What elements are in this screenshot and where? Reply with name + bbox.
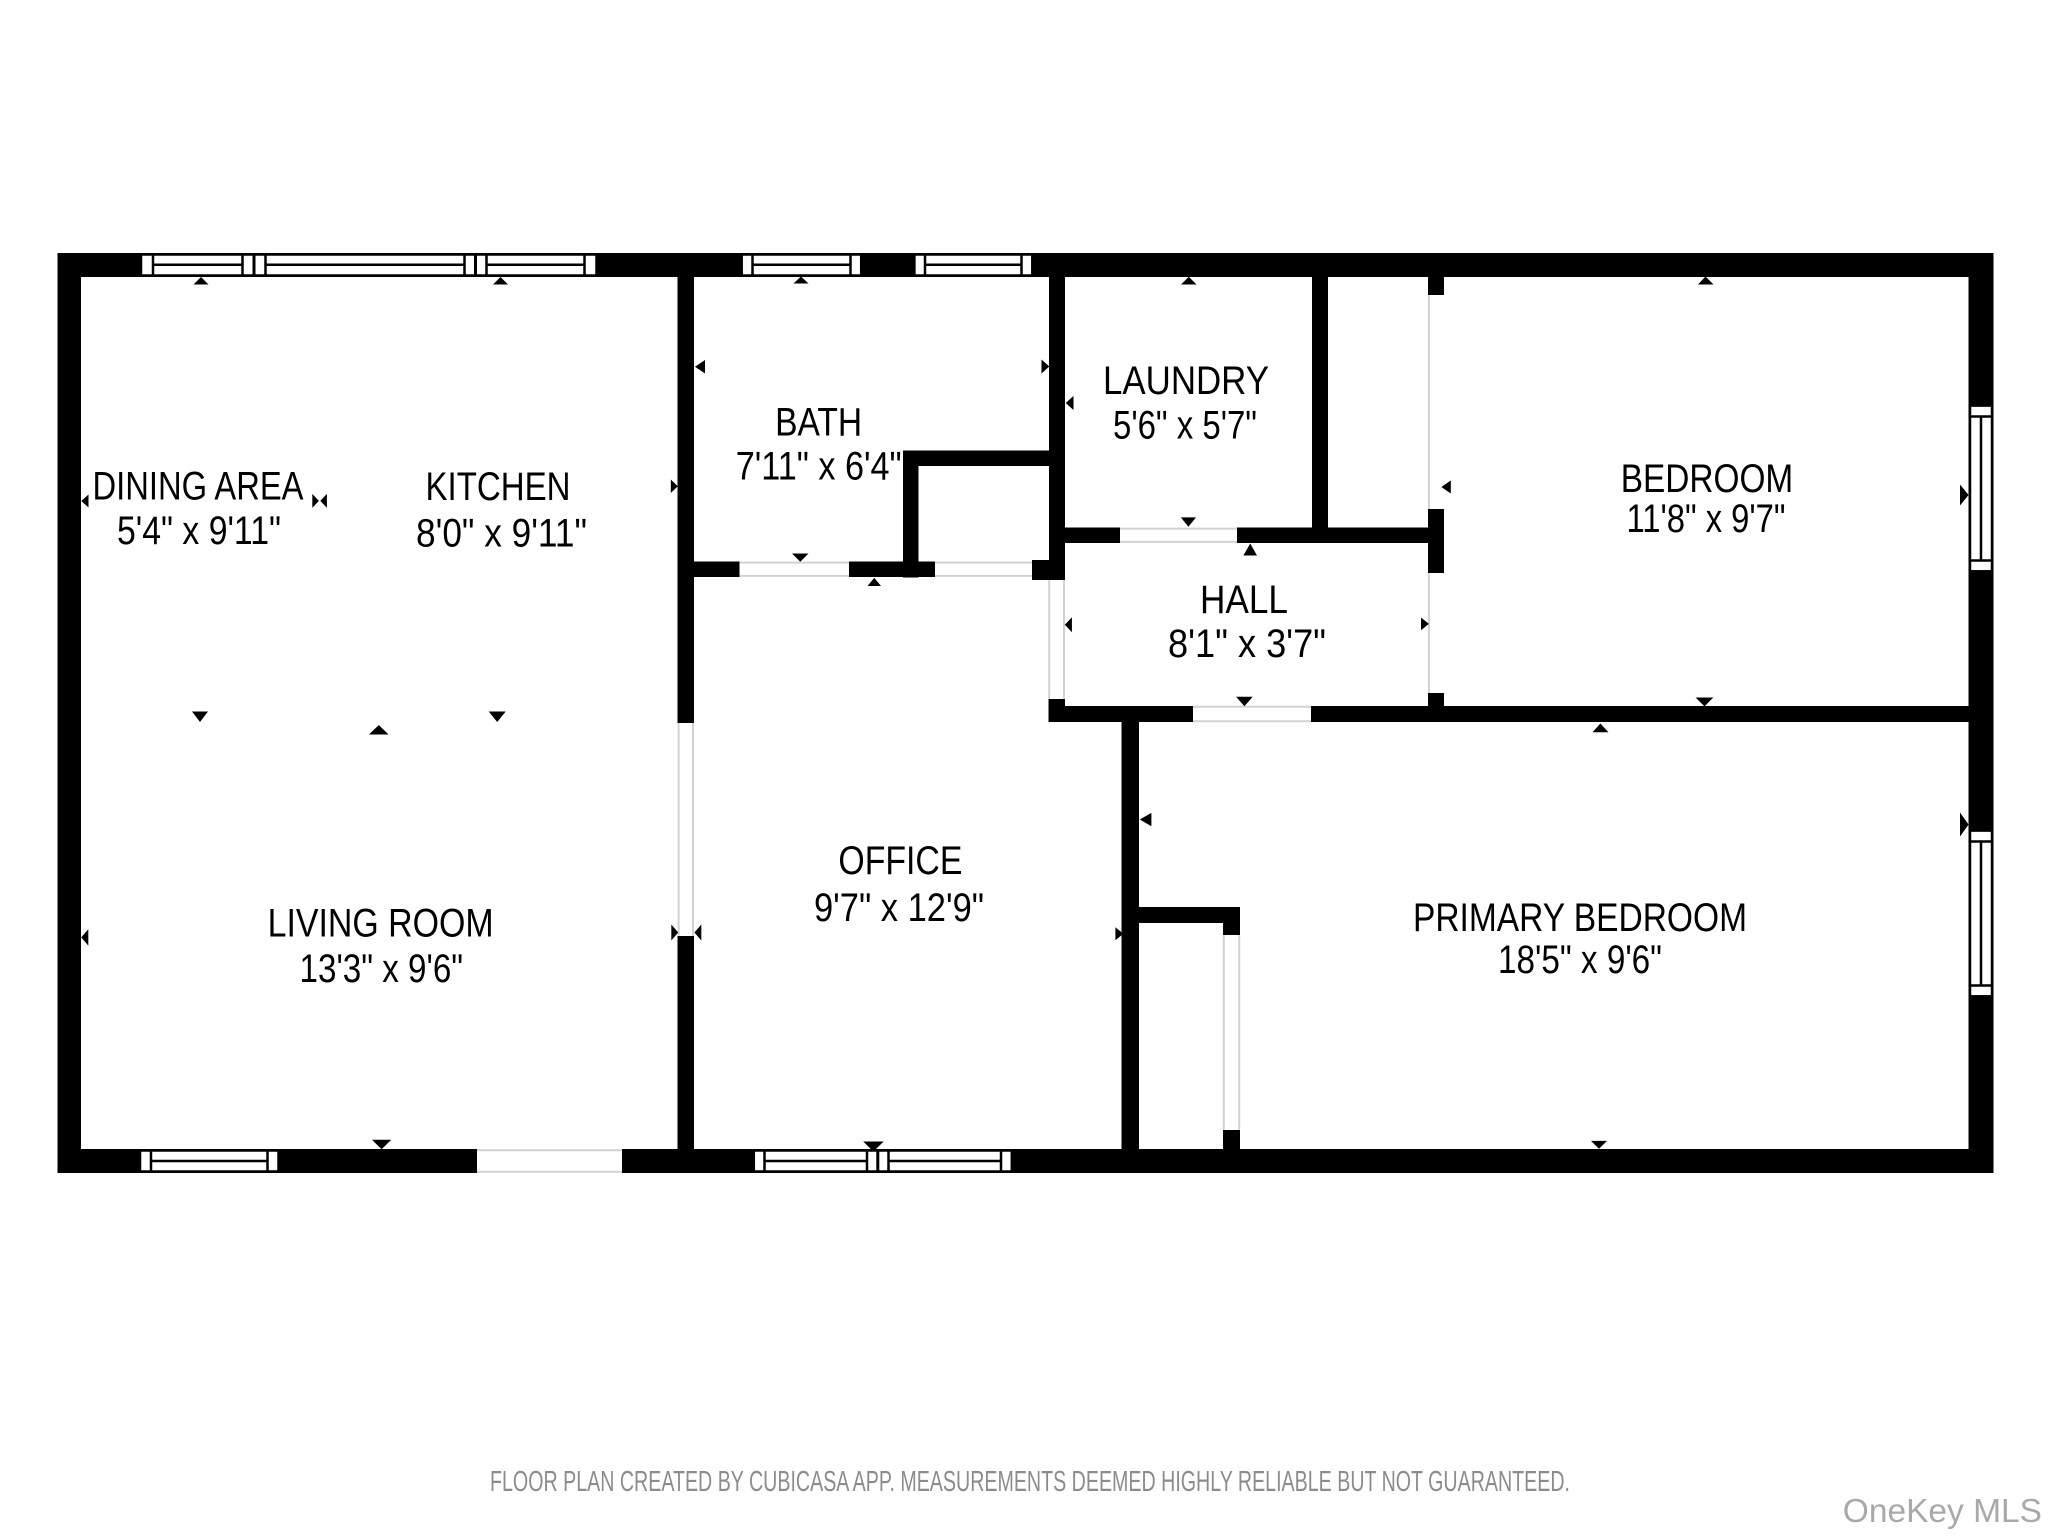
svg-text:LIVING ROOM: LIVING ROOM [268,902,494,946]
svg-text:5'4" x 9'11": 5'4" x 9'11" [117,509,281,553]
svg-text:OneKey MLS: OneKey MLS [1843,1493,2042,1530]
svg-text:13'3" x 9'6": 13'3" x 9'6" [300,947,464,991]
svg-text:FLOOR PLAN CREATED BY CUBICASA: FLOOR PLAN CREATED BY CUBICASA APP. MEAS… [490,1466,1570,1498]
svg-text:8'1" x 3'7": 8'1" x 3'7" [1168,622,1326,666]
svg-text:LAUNDRY: LAUNDRY [1103,359,1269,403]
svg-text:18'5" x 9'6": 18'5" x 9'6" [1498,938,1662,982]
svg-text:9'7" x 12'9": 9'7" x 12'9" [814,886,984,930]
svg-text:PRIMARY BEDROOM: PRIMARY BEDROOM [1413,896,1747,940]
svg-text:BEDROOM: BEDROOM [1621,457,1794,501]
svg-text:11'8" x 9'7": 11'8" x 9'7" [1627,497,1786,541]
svg-text:5'6" x 5'7": 5'6" x 5'7" [1113,404,1257,448]
svg-text:DINING AREA: DINING AREA [93,465,305,509]
svg-text:HALL: HALL [1200,578,1288,622]
svg-text:BATH: BATH [775,400,862,444]
svg-text:8'0" x 9'11": 8'0" x 9'11" [416,512,587,556]
svg-text:7'11" x 6'4": 7'11" x 6'4" [736,445,902,489]
svg-text:OFFICE: OFFICE [838,839,962,883]
svg-text:KITCHEN: KITCHEN [426,465,571,509]
